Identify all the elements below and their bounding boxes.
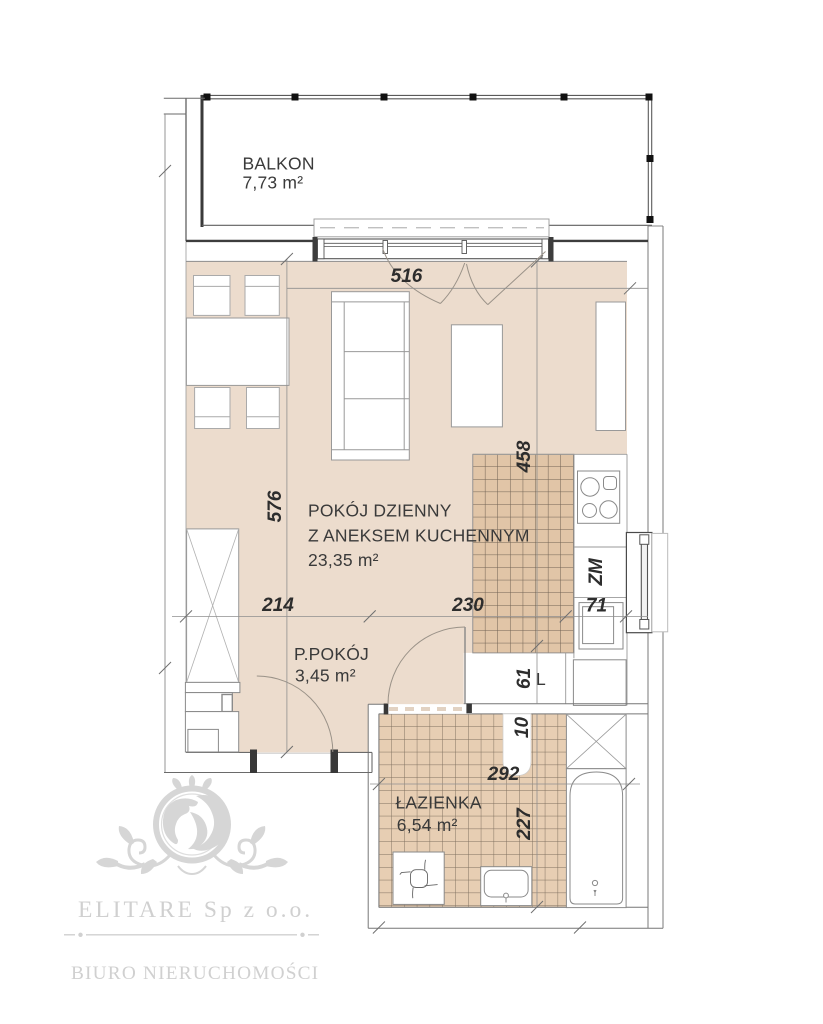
svg-text:BIURO NIERUCHOMOŚCI: BIURO NIERUCHOMOŚCI [71,962,319,984]
svg-text:Z ANEKSEM KUCHENNYM: Z ANEKSEM KUCHENNYM [308,526,530,546]
svg-text:L: L [536,669,546,689]
svg-text:71: 71 [586,596,607,617]
svg-text:ELITARE Sp z o.o.: ELITARE Sp z o.o. [78,897,313,923]
svg-text:P.POKÓJ: P.POKÓJ [294,643,369,664]
svg-text:ŁAZIENKA: ŁAZIENKA [396,793,482,813]
svg-text:ZM: ZM [586,557,607,586]
svg-text:3,45 m²: 3,45 m² [295,666,356,686]
svg-text:6,54 m²: 6,54 m² [397,815,458,835]
svg-text:214: 214 [261,595,294,616]
svg-text:61: 61 [514,668,535,689]
svg-text:458: 458 [514,440,535,473]
svg-text:292: 292 [487,764,520,785]
svg-text:23,35 m²: 23,35 m² [308,550,379,570]
svg-text:576: 576 [265,490,286,522]
svg-text:POKÓJ DZIENNY: POKÓJ DZIENNY [308,500,452,521]
svg-text:7,73 m²: 7,73 m² [243,173,304,193]
svg-text:227: 227 [514,807,535,841]
svg-text:10: 10 [512,717,533,739]
svg-text:BALKON: BALKON [243,154,315,174]
svg-text:230: 230 [451,595,484,616]
svg-text:516: 516 [391,266,423,287]
